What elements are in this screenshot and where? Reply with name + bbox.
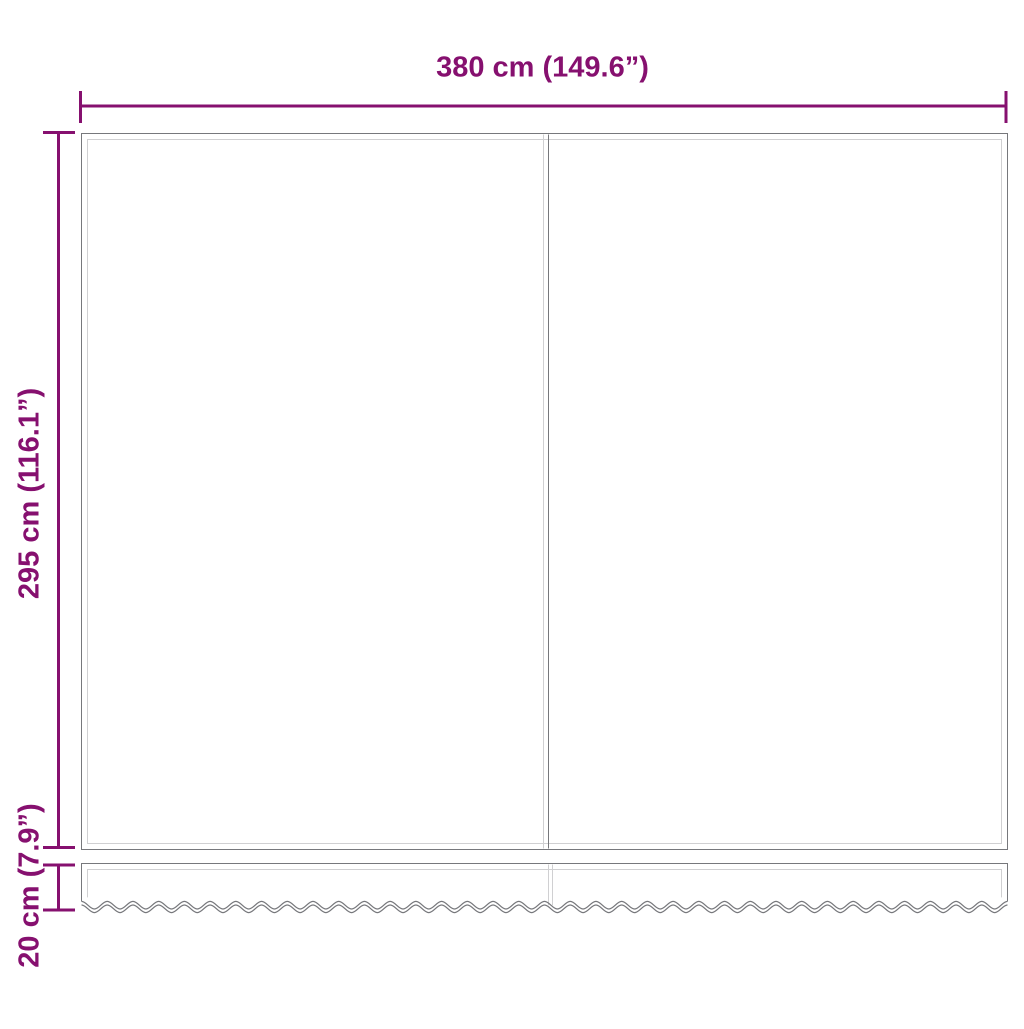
svg-text:20 cm (7.9”): 20 cm (7.9”): [14, 803, 46, 967]
svg-text:295 cm (116.1”): 295 cm (116.1”): [14, 388, 46, 599]
svg-text:380 cm (149.6”): 380 cm (149.6”): [436, 52, 649, 84]
